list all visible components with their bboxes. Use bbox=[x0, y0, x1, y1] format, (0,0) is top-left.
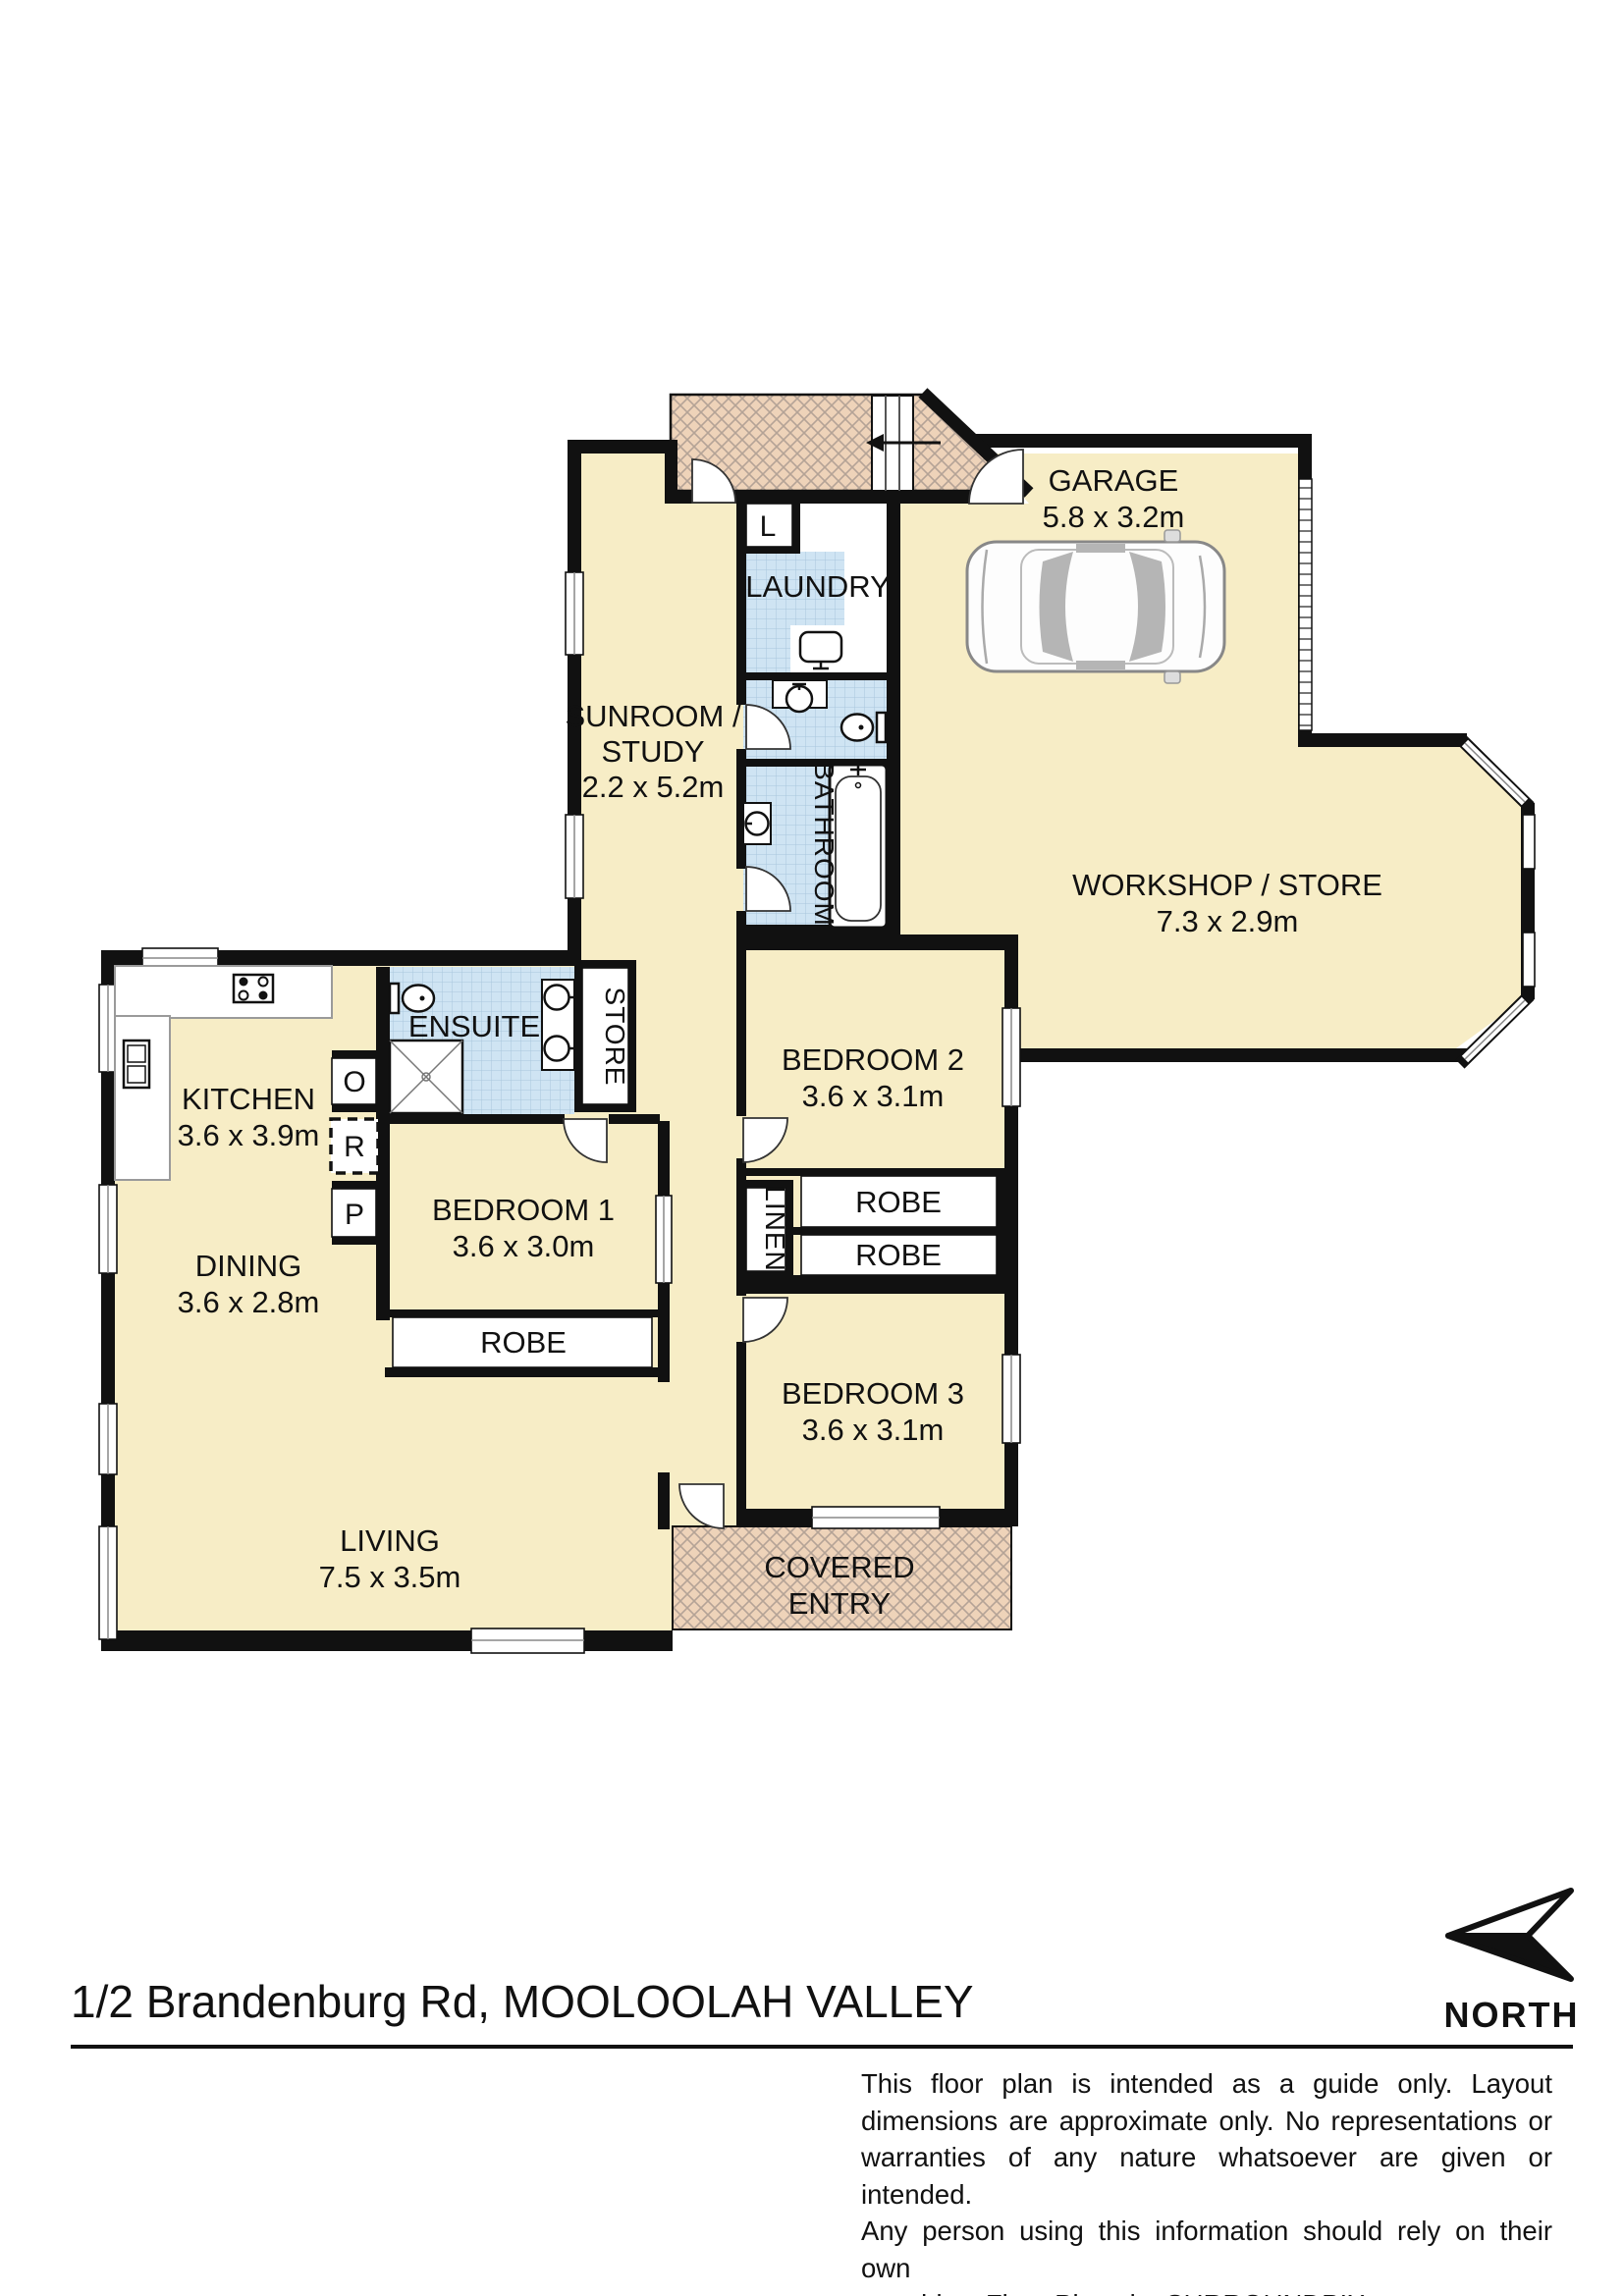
sunroom-label-line2: STUDY bbox=[601, 734, 704, 769]
covered-entry-label-line2: ENTRY bbox=[788, 1586, 892, 1621]
kitchen-label: KITCHEN bbox=[182, 1082, 315, 1116]
robe-bed2-bottom-label: ROBE bbox=[855, 1238, 942, 1272]
store-label: STORE bbox=[600, 988, 630, 1087]
bedroom2-dims: 3.6 x 3.1m bbox=[802, 1079, 945, 1113]
bedroom1-dims: 3.6 x 3.0m bbox=[453, 1229, 595, 1263]
laundry-cupboard-label: L bbox=[760, 510, 777, 543]
robe-bed2-top-label: ROBE bbox=[855, 1185, 942, 1219]
car-icon bbox=[967, 530, 1224, 683]
bay-window-1 bbox=[1523, 815, 1535, 869]
pantry-label: P bbox=[345, 1199, 364, 1231]
disclaimer-text: This floor plan is intended as a guide o… bbox=[861, 2065, 1552, 2296]
bay-window-2 bbox=[1523, 933, 1535, 987]
bedroom2-label: BEDROOM 2 bbox=[782, 1042, 964, 1077]
sunroom-dims: 2.2 x 5.2m bbox=[582, 770, 725, 804]
disclaimer-line: This floor plan is intended as a guide o… bbox=[861, 2065, 1552, 2103]
garage-door bbox=[1299, 479, 1312, 730]
floorplan-page: GARAGE 5.8 x 3.2m WORKSHOP / STORE 7.3 x… bbox=[0, 0, 1624, 2296]
wc-basin-icon bbox=[773, 680, 827, 712]
living-label: LIVING bbox=[340, 1523, 440, 1558]
refrigerator-label: R bbox=[344, 1131, 365, 1163]
kitchen-dims: 3.6 x 3.9m bbox=[178, 1118, 320, 1152]
living-dims: 7.5 x 3.5m bbox=[319, 1560, 461, 1594]
garage-label: GARAGE bbox=[1049, 463, 1179, 498]
bathroom-basin-icon bbox=[743, 803, 771, 844]
laundry-trough-icon bbox=[790, 625, 887, 672]
garage-dims: 5.8 x 3.2m bbox=[1043, 500, 1185, 534]
ensuite-shower-icon bbox=[390, 1041, 462, 1113]
bedroom3-dims: 3.6 x 3.1m bbox=[802, 1413, 945, 1447]
bedroom1-label: BEDROOM 1 bbox=[432, 1193, 615, 1227]
ensuite-label: ENSUITE bbox=[408, 1009, 540, 1043]
sunroom-label-line1: SUNROOM / bbox=[565, 699, 741, 733]
disclaimer-line: dimensions are approximate only. No repr… bbox=[861, 2103, 1552, 2140]
property-address-title: 1/2 Brandenburg Rd, MOOLOOLAH VALLEY bbox=[71, 1975, 974, 2028]
north-label: NORTH bbox=[1426, 1995, 1597, 2036]
stove-icon bbox=[234, 975, 273, 1002]
floorplan-drawing: GARAGE 5.8 x 3.2m WORKSHOP / STORE 7.3 x… bbox=[0, 0, 1624, 2296]
covered-entry-label-line1: COVERED bbox=[764, 1550, 914, 1584]
oven-label: O bbox=[343, 1066, 365, 1098]
north-arrow-icon bbox=[1448, 1891, 1571, 1979]
ensuite-basins-icon bbox=[542, 980, 576, 1070]
disclaimer-line: Any person using this information should… bbox=[861, 2213, 1552, 2286]
linen-label: LINEN bbox=[760, 1186, 790, 1271]
footer-divider bbox=[71, 2045, 1573, 2049]
bedroom3-label: BEDROOM 3 bbox=[782, 1376, 964, 1411]
dining-dims: 3.6 x 2.8m bbox=[178, 1285, 320, 1319]
bathroom-label: BATHROOM bbox=[809, 762, 839, 927]
kitchen-sink-icon bbox=[124, 1041, 149, 1088]
workshop-dims: 7.3 x 2.9m bbox=[1157, 904, 1299, 938]
workshop-label: WORKSHOP / STORE bbox=[1072, 868, 1382, 902]
disclaimer-line: enquiries. Floor Plans by SURROUNDPIX. bbox=[861, 2286, 1552, 2296]
wc-toilet-icon bbox=[841, 713, 886, 742]
dining-label: DINING bbox=[195, 1249, 302, 1283]
laundry-label: LAUNDRY bbox=[745, 569, 891, 604]
disclaimer-line: warranties of any nature whatsoever are … bbox=[861, 2139, 1552, 2213]
robe-bed1-label: ROBE bbox=[480, 1325, 567, 1360]
